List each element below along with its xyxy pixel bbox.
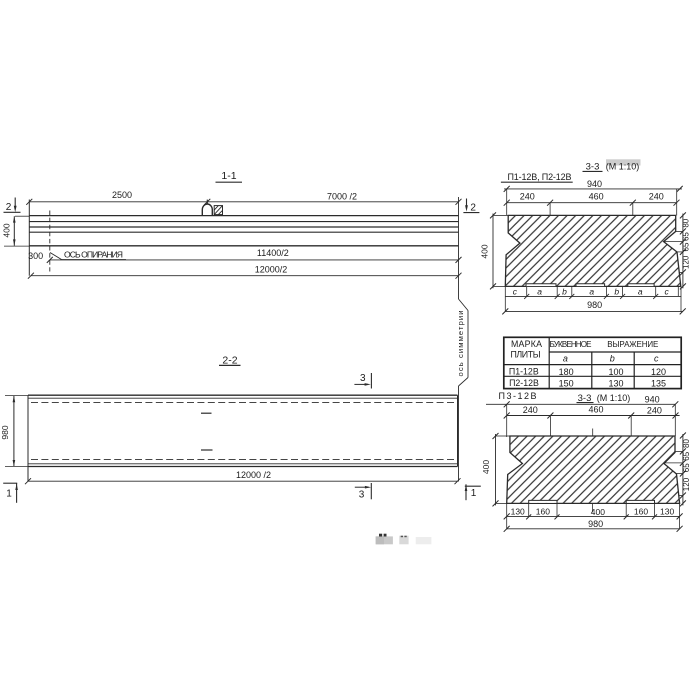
svg-text:ось симметрии: ось симметрии (456, 311, 465, 377)
svg-text:100: 100 (608, 367, 623, 377)
svg-text:a: a (589, 287, 594, 297)
svg-text:3: 3 (359, 489, 365, 500)
svg-text:2-2: 2-2 (222, 355, 237, 367)
svg-text:120: 120 (682, 255, 691, 269)
svg-text:c: c (664, 287, 669, 297)
svg-text:12000/2: 12000/2 (255, 264, 288, 274)
svg-text:65: 65 (682, 463, 691, 472)
svg-text:c: c (513, 287, 518, 297)
svg-text:1: 1 (471, 488, 477, 499)
svg-text:b: b (562, 287, 567, 297)
svg-text:400: 400 (2, 223, 12, 237)
svg-text:2: 2 (470, 203, 476, 214)
svg-text:МАРКА: МАРКА (511, 339, 542, 349)
svg-text:c: c (654, 354, 659, 364)
svg-text:150: 150 (559, 379, 574, 389)
svg-text:11400/2: 11400/2 (257, 248, 289, 258)
svg-text:180: 180 (559, 367, 574, 377)
svg-text:400: 400 (481, 460, 491, 474)
svg-text:ВЫРАЖЕНИЕ: ВЫРАЖЕНИЕ (607, 340, 658, 349)
svg-text:160: 160 (536, 506, 550, 516)
svg-text:П2-12В: П2-12В (509, 378, 539, 388)
svg-text:80: 80 (682, 218, 691, 227)
svg-text:(М 1:10): (М 1:10) (606, 161, 640, 171)
svg-text:940: 940 (645, 394, 660, 404)
svg-text:a: a (537, 287, 542, 297)
svg-text:65: 65 (682, 451, 691, 460)
svg-text:65: 65 (682, 242, 691, 251)
svg-text:130: 130 (608, 379, 623, 389)
svg-text:3: 3 (360, 373, 366, 384)
svg-text:460: 460 (589, 191, 604, 201)
svg-text:3-3: 3-3 (578, 393, 592, 404)
svg-text:120: 120 (682, 477, 691, 491)
svg-text:130: 130 (511, 506, 525, 516)
svg-text:2: 2 (6, 202, 12, 213)
svg-text:1: 1 (6, 488, 12, 499)
svg-text:П3-12В: П3-12В (499, 391, 537, 401)
svg-text:980: 980 (588, 519, 603, 529)
svg-text:940: 940 (587, 179, 602, 189)
svg-text:135: 135 (651, 379, 666, 389)
svg-text:400: 400 (480, 244, 490, 258)
svg-text:460: 460 (588, 404, 603, 414)
svg-text:ОСЬ ОПИРАНИЯ: ОСЬ ОПИРАНИЯ (64, 250, 123, 260)
svg-text:a: a (563, 354, 568, 364)
svg-text:120: 120 (651, 367, 666, 377)
svg-text:12000 /2: 12000 /2 (236, 470, 271, 480)
svg-text:240: 240 (523, 405, 538, 415)
svg-text:b: b (610, 354, 615, 364)
svg-text:П1-12В: П1-12В (509, 366, 539, 376)
svg-text:240: 240 (520, 191, 535, 201)
svg-text:980: 980 (587, 300, 602, 310)
svg-text:П1-12В, П2-12В: П1-12В, П2-12В (508, 172, 572, 182)
svg-text:240: 240 (649, 191, 664, 201)
svg-text:a: a (638, 287, 643, 297)
svg-text:130: 130 (660, 506, 674, 516)
svg-text:БУКВЕННОЕ: БУКВЕННОЕ (550, 340, 592, 349)
svg-text:ПЛИТЫ: ПЛИТЫ (511, 349, 541, 359)
svg-text:65: 65 (682, 232, 691, 241)
svg-text:3-3: 3-3 (586, 161, 600, 172)
svg-text:80: 80 (682, 439, 691, 448)
svg-text:7000 /2: 7000 /2 (327, 192, 357, 202)
svg-text:b: b (614, 287, 619, 297)
svg-text:160: 160 (634, 506, 648, 516)
svg-text:300: 300 (28, 251, 43, 261)
svg-text:240: 240 (647, 406, 662, 416)
svg-text:1-1: 1-1 (221, 170, 236, 182)
svg-text:(М 1:10): (М 1:10) (597, 393, 631, 403)
svg-text:400: 400 (591, 507, 605, 517)
svg-text:2500: 2500 (112, 190, 132, 200)
svg-text:980: 980 (0, 425, 10, 439)
